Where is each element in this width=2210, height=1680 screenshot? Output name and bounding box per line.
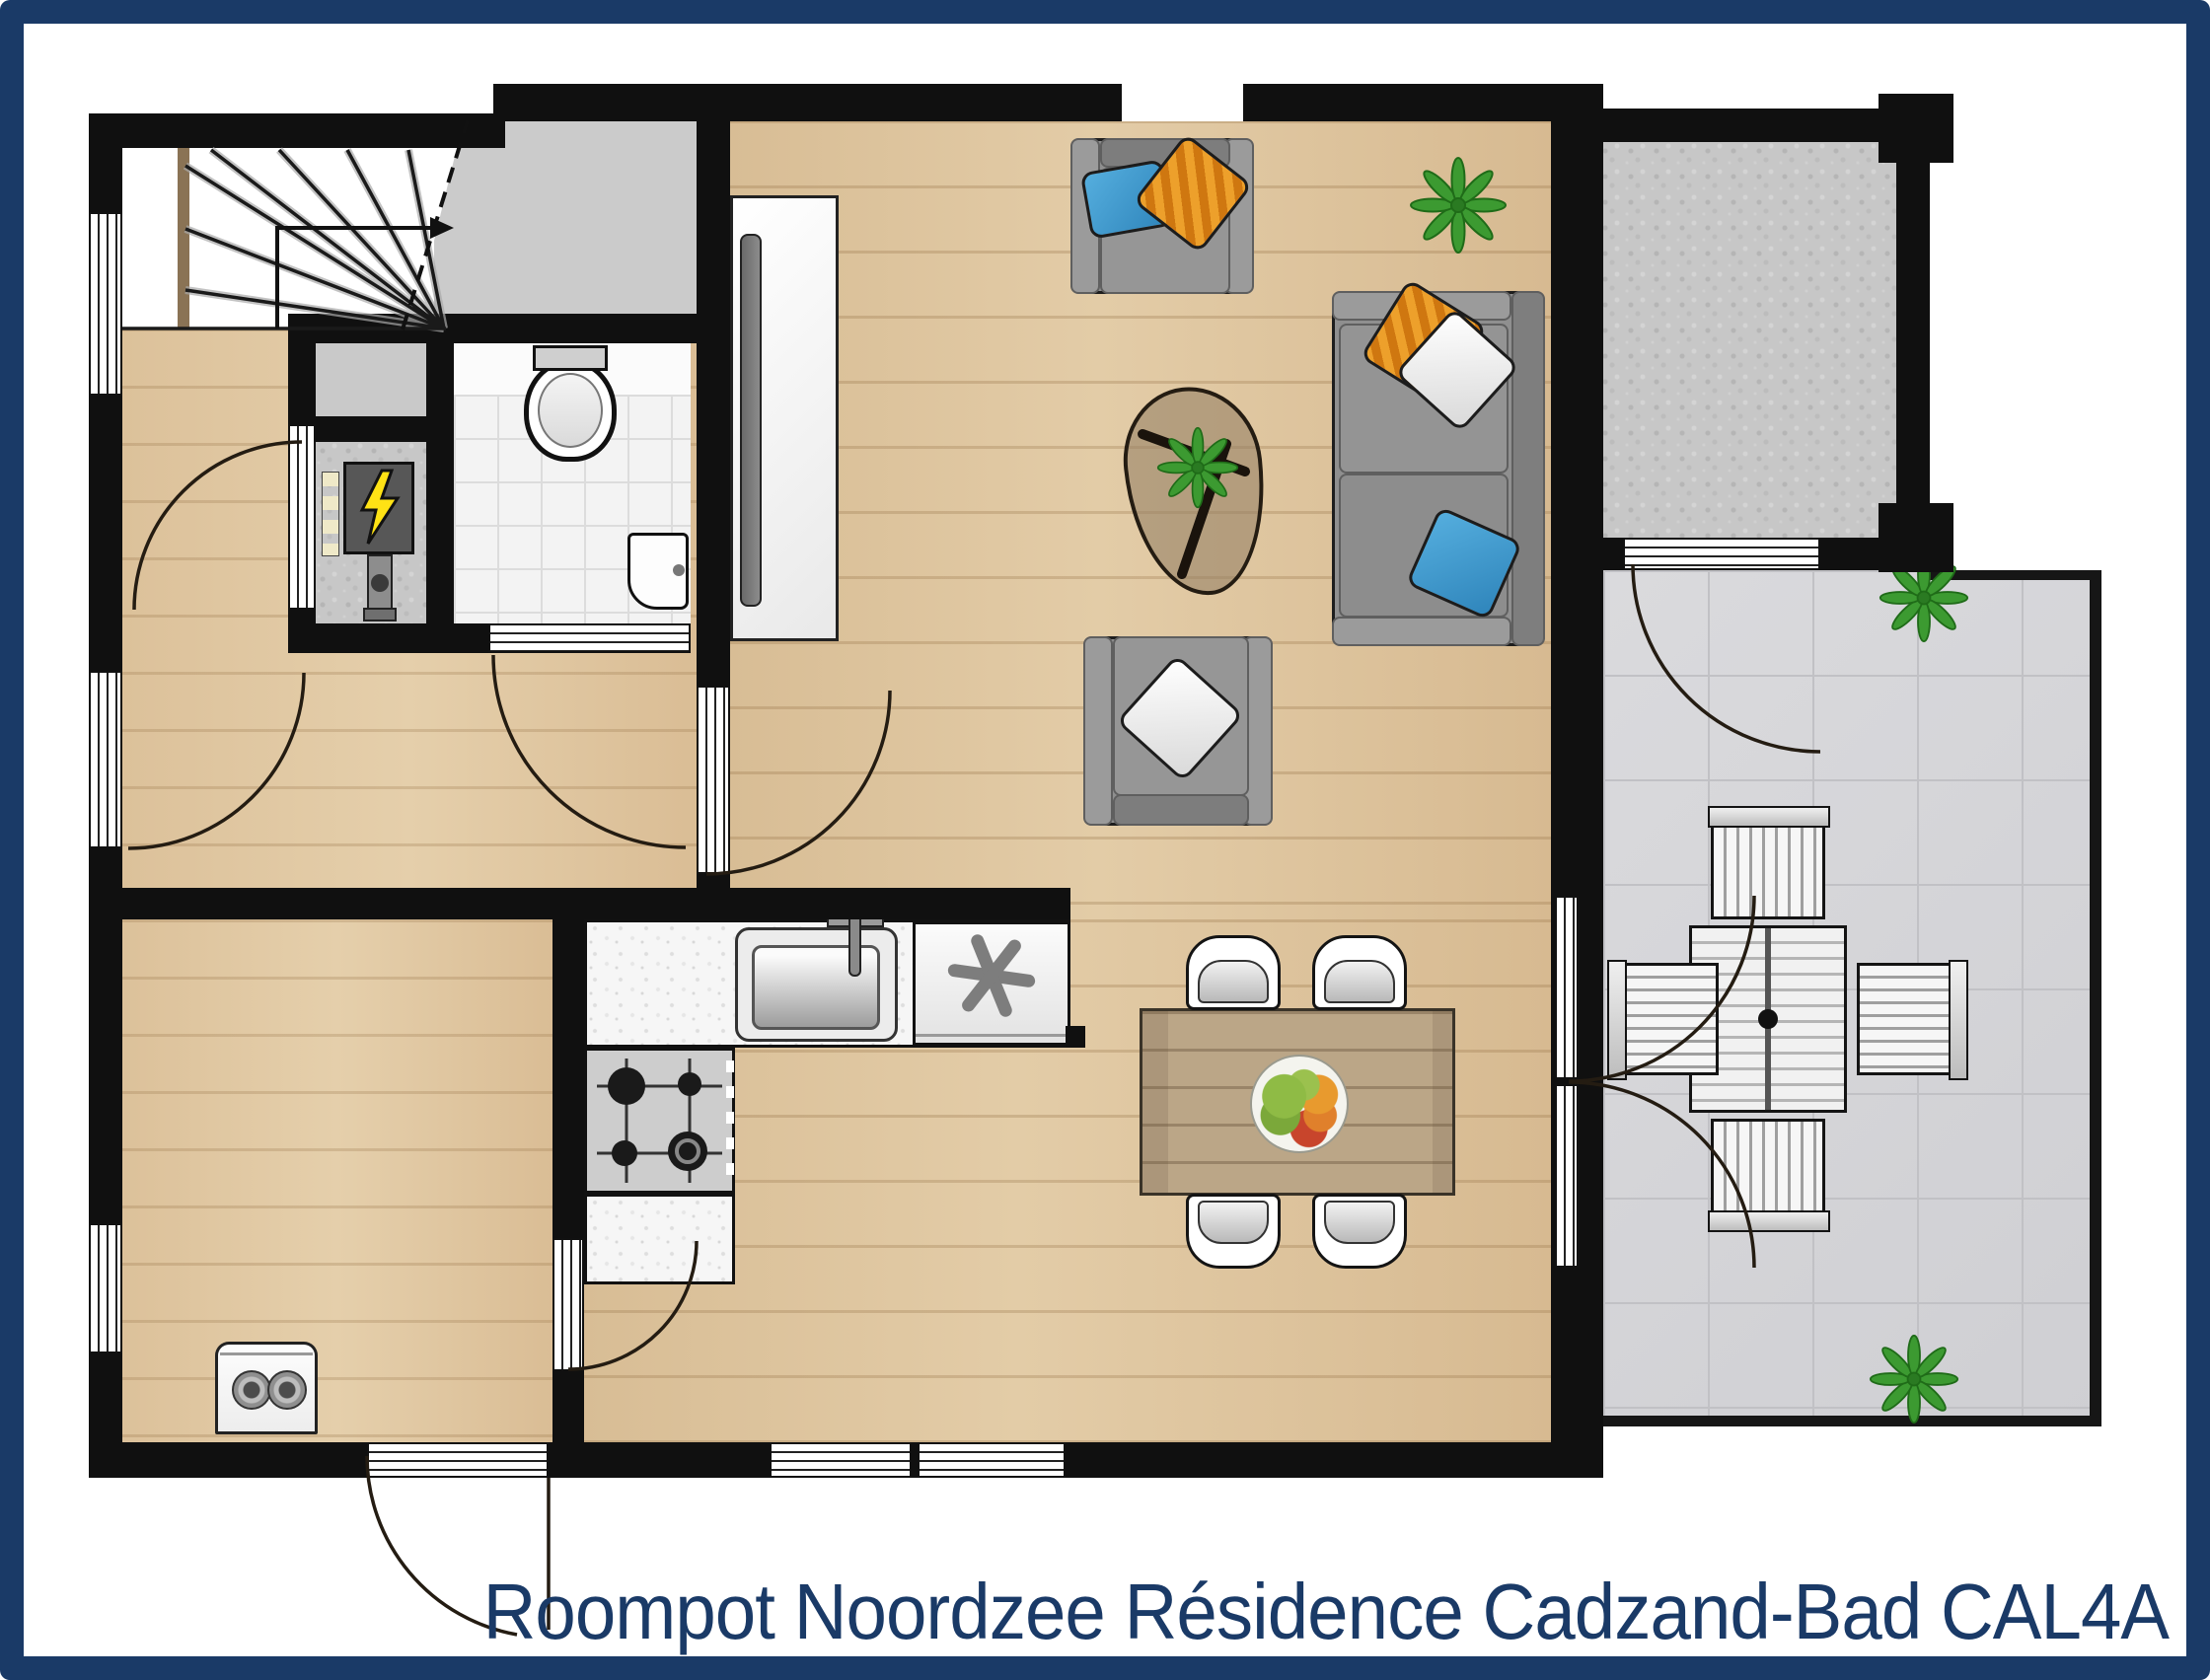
washer-dial-right [267,1370,307,1410]
vestibule-floor [122,919,552,1442]
dining-chair-bottom-left [1186,1194,1281,1269]
wall-toilet-right [697,120,730,686]
toilet-seat-inner [538,373,603,448]
dining-chair-top-left [1186,935,1281,1010]
page-title: Roompot Noordzee Résidence Cadzand-Bad C… [483,1567,2169,1657]
basin-tap-icon [673,564,685,576]
lightning-bolt-icon [346,465,411,551]
stove-burners [587,1051,732,1191]
wall-top-stair [120,113,505,148]
toilet-door-slab [488,623,691,653]
closet-shelf [316,343,426,416]
terrace-table-hole [1758,1009,1778,1029]
terrace-chair-left [1608,963,1719,1075]
floor-plan-page: { "title": { "text": "Roompot Noordzee R… [0,0,2210,1680]
french-door-bottom-slab [1555,1084,1579,1268]
washer-dial-left [232,1370,271,1410]
wall-closet-toilet [426,343,454,623]
wall-closet-bottom [288,623,454,653]
storage-pillar-topright [1878,94,1953,163]
wall-top-main [493,84,1603,121]
dining-chair-bottom-right [1312,1194,1407,1269]
wall-storage-right [1896,109,1930,567]
dining-chair-top-right [1312,935,1407,1010]
front-door-slab [367,1442,549,1478]
stair-stringer-left [178,135,189,329]
tv-icon [740,234,762,607]
stair-landing-floor [412,120,697,329]
washing-machine-icon [215,1342,318,1434]
wall-landing-bottom [288,314,720,343]
window-stairs-left [89,212,122,396]
storage-door-slab [1623,538,1820,570]
terrace-edge-bottom [1603,1416,2101,1426]
fuse-box-dots [322,472,339,556]
toilet-tank [533,345,608,371]
staircase-area [122,148,434,329]
gas-stove-icon [584,1048,735,1194]
wall-storage-top [1567,109,1930,142]
plant-icon-living [1409,156,1508,255]
french-door-top-slab [1555,896,1579,1079]
vestibule-door-slab [552,1238,584,1371]
kitchen-counter-below-stove [584,1194,735,1284]
plant-icon [1156,426,1239,509]
fruit-bowl-icon [1250,1055,1349,1153]
closet-shelf-divider [316,416,426,442]
freezer-asterisk-icon [916,924,1068,1031]
wall-vestibule-right-lower [552,1371,584,1442]
pipe-valve [371,574,389,592]
wall-toilet-bottom-left [454,623,491,653]
storage-room-floor [1598,142,1896,538]
side-door-glazed [89,671,122,848]
wall-kitchen-back [122,888,1070,919]
terrace-edge-right [2090,570,2101,1425]
plant-icon-terrace-bottom [1869,1334,1959,1424]
meter-closet-door-slab [288,424,316,610]
wall-storage-bottom-right [1820,538,1896,570]
wall-right [1551,84,1603,1478]
sink-tap-stem [848,915,861,977]
terrace-chair-right [1857,963,1967,1075]
terrace-chair-top [1711,807,1825,919]
wall-top-window-gap [1122,84,1243,121]
kitchen-counter-stub [1066,1026,1085,1048]
wall-storage-bottom-left [1567,538,1623,570]
electrical-panel-icon [343,462,414,554]
window-vestibule-left [89,1223,122,1353]
terrace-chair-bottom [1711,1119,1825,1231]
freezer-icon [913,921,1070,1046]
pipe-cap [363,608,397,621]
wall-vestibule-right-upper [552,919,584,1238]
hall-living-door-slab [697,686,730,874]
window-dining-mullion [910,1442,920,1478]
